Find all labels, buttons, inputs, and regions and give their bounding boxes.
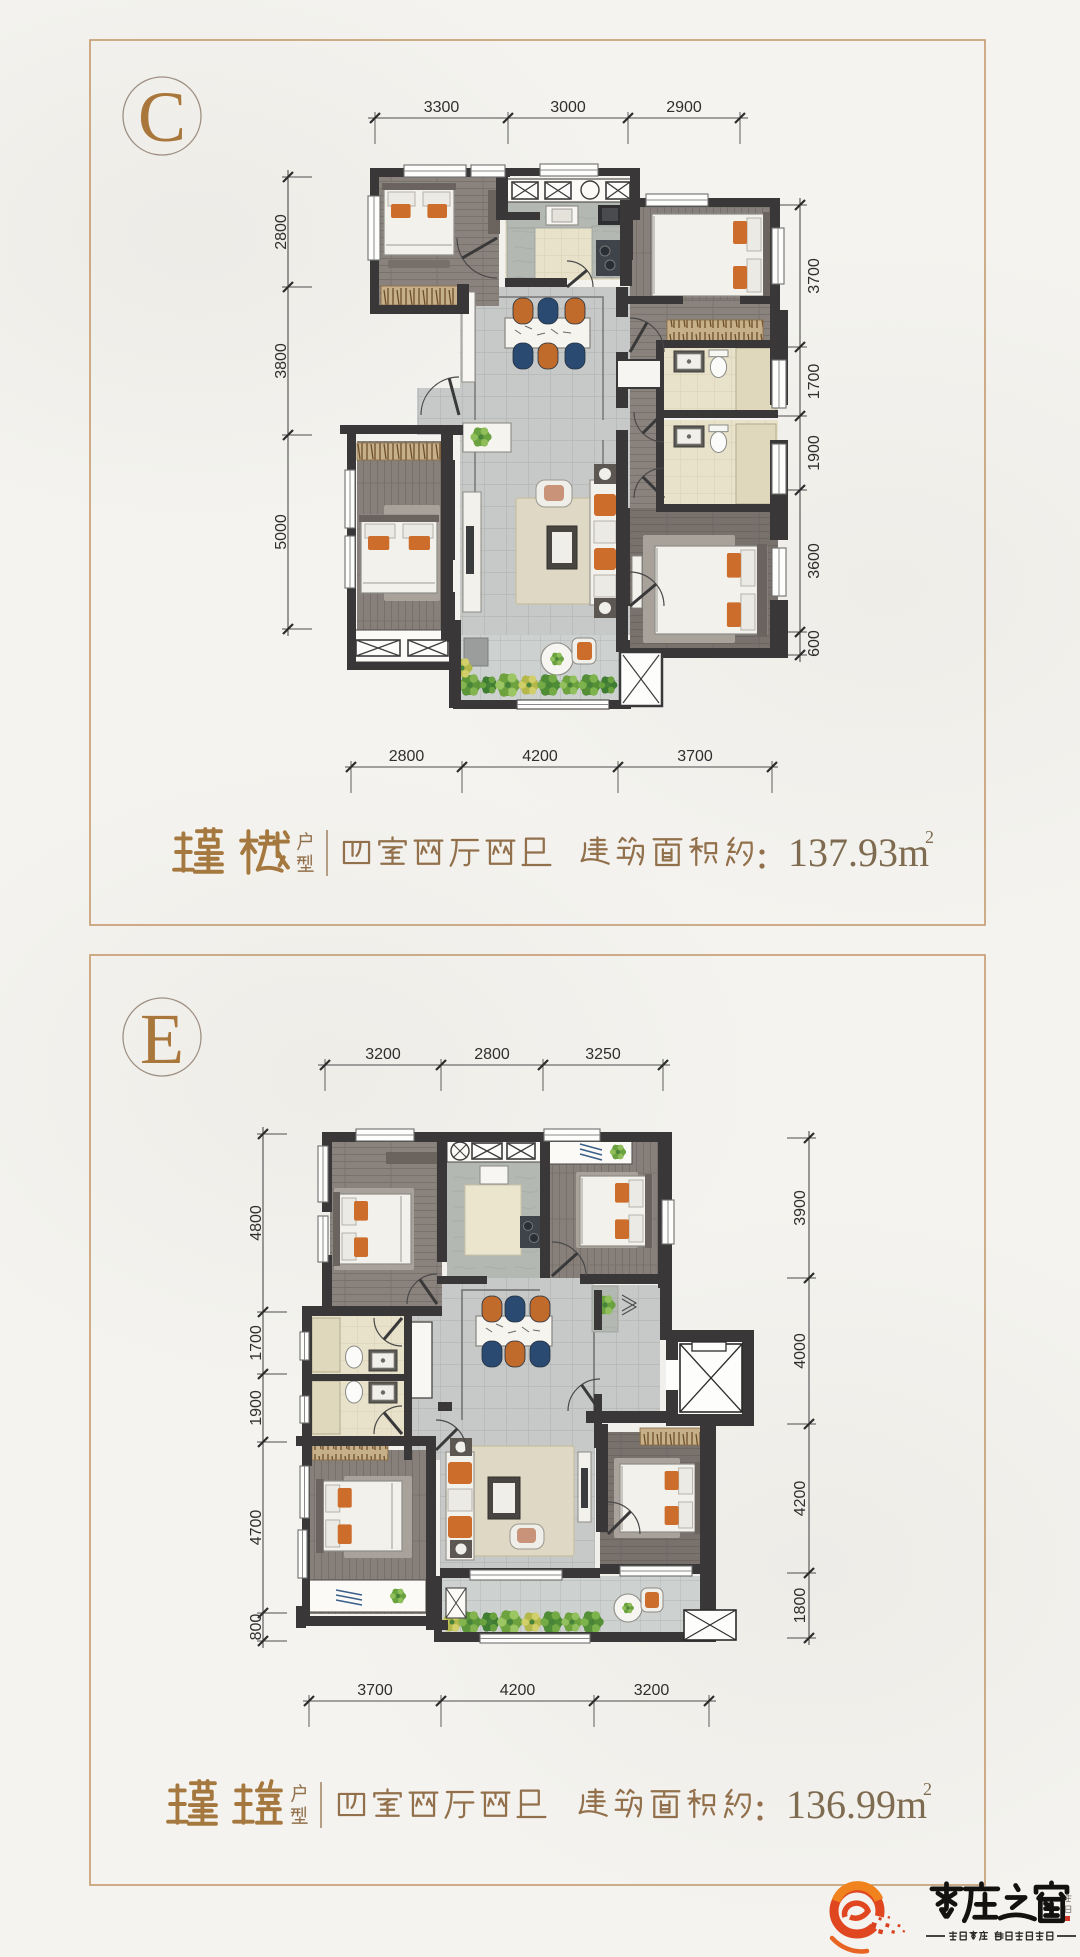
- svg-text:800: 800: [248, 1614, 265, 1641]
- svg-text:2900: 2900: [666, 99, 702, 116]
- svg-text:1900: 1900: [248, 1390, 265, 1426]
- svg-text:C: C: [138, 77, 186, 157]
- svg-text:4200: 4200: [522, 748, 558, 765]
- svg-text:600: 600: [806, 630, 823, 657]
- svg-text:136.99m: 136.99m: [786, 1782, 927, 1827]
- svg-text:137.93m: 137.93m: [788, 830, 929, 875]
- svg-text:4200: 4200: [792, 1481, 809, 1517]
- svg-text:3700: 3700: [677, 748, 713, 765]
- svg-text:3700: 3700: [357, 1682, 393, 1699]
- svg-text:5000: 5000: [273, 514, 290, 550]
- svg-text:E: E: [140, 999, 184, 1079]
- svg-text:3200: 3200: [365, 1046, 401, 1063]
- svg-text:4000: 4000: [792, 1333, 809, 1369]
- svg-text:4800: 4800: [248, 1205, 265, 1241]
- svg-text:4700: 4700: [248, 1510, 265, 1546]
- svg-text:3700: 3700: [806, 258, 823, 294]
- svg-text:3300: 3300: [424, 99, 460, 116]
- svg-text:2800: 2800: [474, 1046, 510, 1063]
- svg-text:1900: 1900: [806, 435, 823, 471]
- svg-text:3200: 3200: [634, 1682, 670, 1699]
- svg-text:3600: 3600: [806, 543, 823, 579]
- svg-text:3000: 3000: [550, 99, 586, 116]
- svg-text:1700: 1700: [806, 364, 823, 400]
- svg-text:3800: 3800: [273, 343, 290, 379]
- svg-text:2: 2: [923, 1779, 932, 1799]
- svg-text:2800: 2800: [389, 748, 425, 765]
- svg-text:3900: 3900: [792, 1190, 809, 1226]
- svg-text:4200: 4200: [500, 1682, 536, 1699]
- svg-text:2800: 2800: [273, 214, 290, 250]
- svg-text:1700: 1700: [248, 1325, 265, 1361]
- svg-text:2: 2: [925, 827, 934, 847]
- svg-text:3250: 3250: [585, 1046, 621, 1063]
- svg-text:1800: 1800: [792, 1588, 809, 1624]
